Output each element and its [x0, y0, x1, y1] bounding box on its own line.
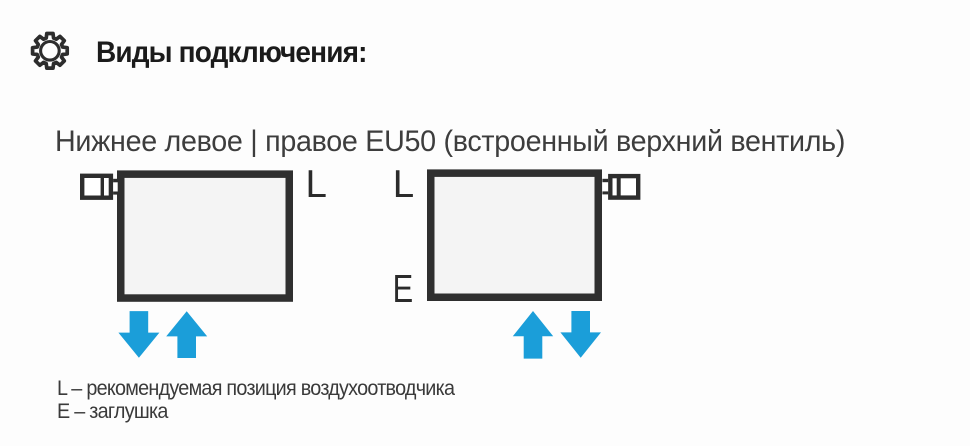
svg-text:E: E — [393, 268, 414, 311]
svg-text:L: L — [306, 163, 327, 206]
svg-text:L: L — [393, 163, 414, 206]
